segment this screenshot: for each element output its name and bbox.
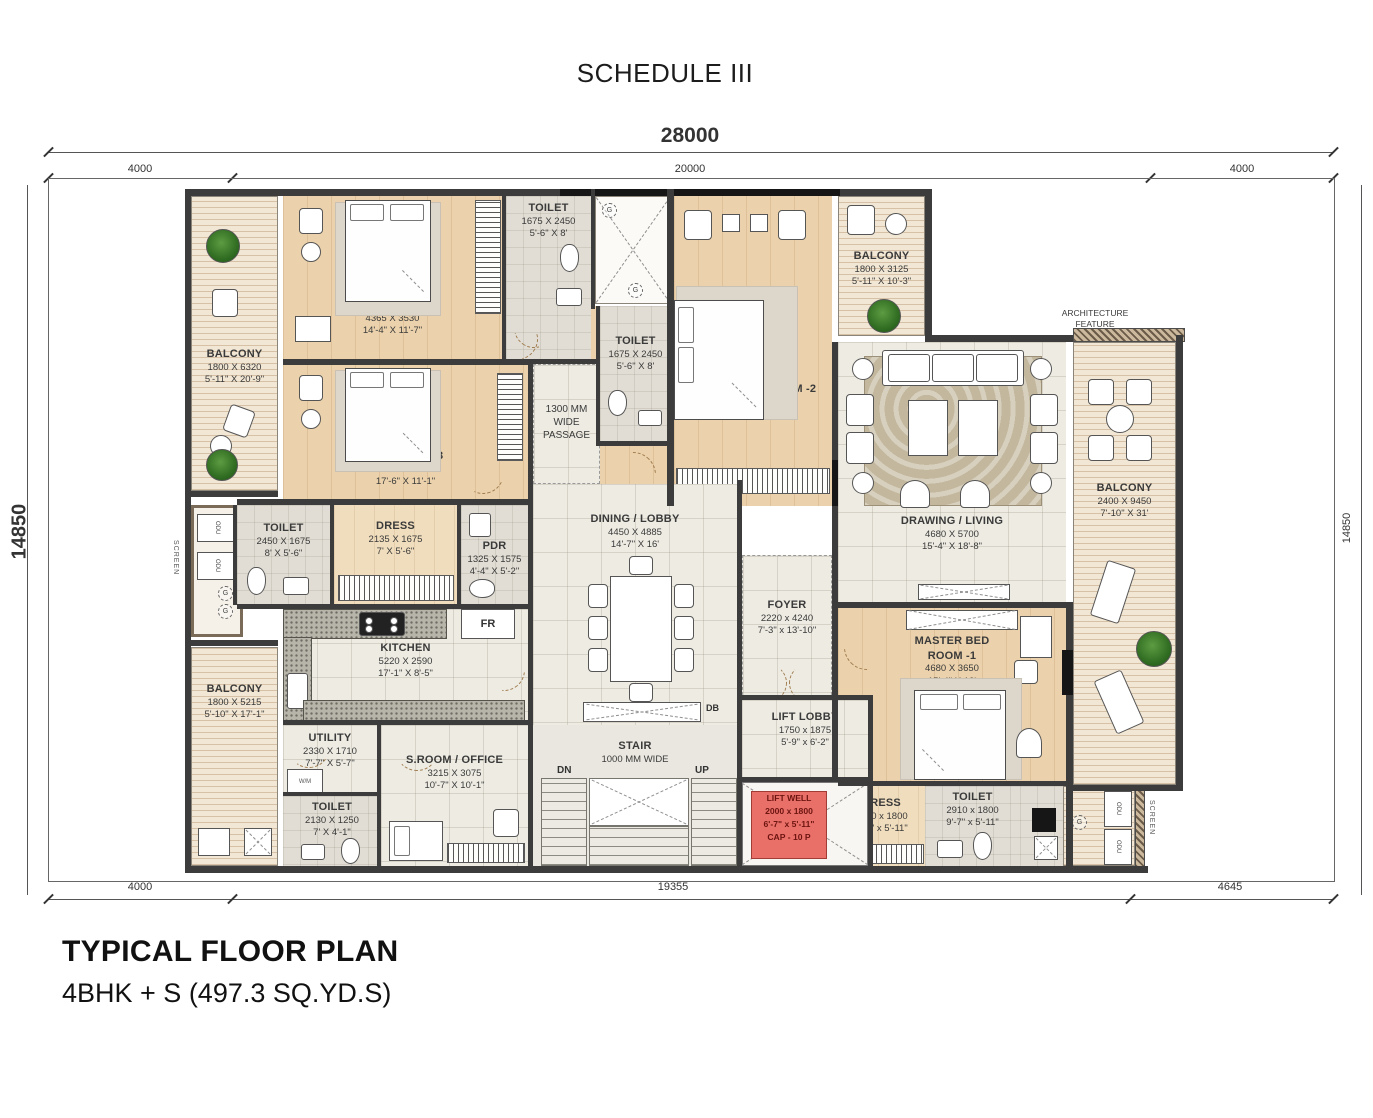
room-dim: 7'-10" X 31' <box>1074 508 1175 521</box>
room-toilet-bottom-right: TOILET 2910 x 1800 9'-7" x 5'-11" <box>925 786 1020 866</box>
dim-line <box>48 899 1333 900</box>
shaft-icon <box>244 828 272 856</box>
room-dim: 3215 X 3075 <box>381 768 528 781</box>
single-bed-icon <box>389 821 443 861</box>
door-arc <box>395 727 439 771</box>
dim-top-overall: 28000 <box>620 124 760 148</box>
room-dim: 1800 X 3125 <box>839 264 924 277</box>
wall <box>591 189 595 309</box>
sofa-cushion <box>932 354 974 382</box>
stair-run <box>541 778 587 866</box>
chair-icon <box>847 205 875 235</box>
odu-unit-icon: ODU <box>197 514 237 542</box>
geyser-icon: G <box>218 586 233 601</box>
washbasin-icon <box>638 410 662 426</box>
chair-icon <box>1126 435 1152 461</box>
room-dim: 1675 X 2450 <box>600 349 671 362</box>
wall <box>233 505 237 605</box>
stool-icon <box>1030 358 1052 380</box>
lounge-chair-icon <box>1094 669 1145 734</box>
kitchen-counter <box>303 700 525 722</box>
toilet-icon <box>469 579 495 598</box>
wall <box>1073 785 1183 791</box>
desk-icon <box>1020 616 1052 658</box>
room-balcony-top-left: BALCONY 1800 X 6320 5'-11" X 20'-9" <box>191 196 278 491</box>
plant-icon <box>1136 631 1172 667</box>
wall <box>283 720 530 725</box>
chair-icon <box>493 809 519 837</box>
room-dim: 15'-4" X 18'-8" <box>838 541 1066 554</box>
room-dim: 9'-7" x 5'-11" <box>925 817 1020 830</box>
wall <box>560 189 840 196</box>
room-pdr: PDR 1325 X 1575 4'-4" X 5'-2" <box>461 505 528 604</box>
chair-icon <box>629 556 653 575</box>
chair-icon <box>674 616 694 640</box>
room-dim: 5'-10" X 17'-1" <box>192 709 277 722</box>
room-dim: 1325 X 1575 <box>461 554 528 567</box>
room-dim: 4'-4" X 5'-2" <box>461 566 528 579</box>
room-shaft-filler <box>1020 786 1063 866</box>
bed-icon <box>345 200 431 302</box>
room-dim: 5'-11" X 20'-9" <box>192 374 277 387</box>
room-dim: 5'-6" X 8' <box>506 228 591 241</box>
dim-top-left: 4000 <box>90 163 190 175</box>
dim-side-left: 14850 <box>9 482 32 582</box>
room-dim: 1800 X 6320 <box>192 362 277 375</box>
desk-icon <box>295 316 331 342</box>
room-label: TOILET <box>506 201 591 216</box>
wall <box>457 505 461 605</box>
up-label: UP <box>695 765 709 776</box>
room-dim: 8' X 5'-6" <box>237 548 330 561</box>
db-label: DB <box>706 703 719 713</box>
room-dim: 2400 X 9450 <box>1074 496 1175 509</box>
dim-line <box>1361 185 1362 895</box>
wall <box>185 491 278 497</box>
room-kitchen: KITCHEN 5220 X 2590 17'-1" X 8'-5" FR <box>283 609 528 720</box>
room-label: BALCONY <box>192 682 277 697</box>
chair-icon <box>1088 379 1114 405</box>
wall <box>283 359 530 365</box>
table-icon <box>750 214 768 232</box>
footer-title: TYPICAL FLOOR PLAN <box>62 935 399 969</box>
architecture-feature-bar <box>1073 328 1185 342</box>
chair-icon <box>588 616 608 640</box>
room-label: BALCONY <box>839 249 924 264</box>
chair-icon <box>588 648 608 672</box>
armchair-icon <box>846 432 874 464</box>
sofa-cushion <box>888 354 930 382</box>
room-dim: 2910 x 1800 <box>925 805 1020 818</box>
room-dim: 5'-9" x 6'-2" <box>742 737 868 750</box>
wall <box>596 306 600 441</box>
chair-icon <box>629 683 653 702</box>
room-balcony-right: BALCONY 2400 X 9450 7'-10" X 31' <box>1073 342 1176 785</box>
room-balcony-bottom-right: G ODU ODU <box>1063 786 1135 866</box>
table-icon <box>885 213 907 235</box>
fridge-icon: FR <box>461 609 515 639</box>
wall <box>1062 650 1073 695</box>
dn-label: DN <box>557 765 571 776</box>
chair-icon <box>1126 379 1152 405</box>
room-dim: 14'-7" X 16' <box>533 539 737 552</box>
chair-icon <box>778 210 806 240</box>
room-label: BALCONY <box>192 347 277 362</box>
bed-icon <box>674 300 764 420</box>
room-lift-well: LIFT WELL 2000 x 1800 6'-7" x 5'-11" CAP… <box>742 782 868 866</box>
tv-console-icon <box>918 584 1010 600</box>
center-table-icon <box>958 400 998 456</box>
room-label: TOILET <box>925 790 1020 805</box>
wall <box>1066 602 1073 866</box>
wall <box>737 480 742 873</box>
room-label: PDR <box>461 539 528 554</box>
plant-icon <box>206 449 238 481</box>
stair-run <box>589 826 689 866</box>
wall <box>925 189 932 342</box>
armchair-icon <box>846 394 874 426</box>
washbasin-icon <box>283 577 309 595</box>
washbasin-icon <box>556 288 582 306</box>
room-label: STAIR <box>533 739 737 754</box>
wall <box>737 777 873 782</box>
washbasin-icon <box>469 513 491 537</box>
console-icon <box>583 702 701 722</box>
hob-icon <box>359 612 405 636</box>
room-lift-lobby: LIFT LOBBY 1750 x 1875 5'-9" x 6'-2" <box>742 700 868 777</box>
room-balcony-bottom-left: BALCONY 1800 X 5215 5'-10" X 17'-1" <box>191 647 278 866</box>
room-dim: 10'-7" X 10'-1" <box>381 780 528 793</box>
wall <box>1176 335 1183 790</box>
chair-icon <box>588 584 608 608</box>
lift-well-label: LIFT WELL 2000 x 1800 6'-7" x 5'-11" CAP… <box>752 792 826 844</box>
room-master-bedroom-2: MASTER BED ROOM -2 3595 X 6365 11'-10" X… <box>674 196 832 506</box>
wall <box>283 792 381 796</box>
wall <box>237 499 530 505</box>
room-passage: 1300 MM WIDE PASSAGE <box>533 364 600 484</box>
wall <box>528 359 533 873</box>
wall <box>185 866 1075 873</box>
toilet-icon <box>608 390 627 416</box>
room-label: FOYER <box>743 598 831 613</box>
room-dim: 7' X 4'-1" <box>283 827 381 840</box>
armchair-icon <box>1016 728 1042 758</box>
dim-bottom-center: 19355 <box>618 881 728 893</box>
geyser-icon: G <box>1072 815 1087 830</box>
center-table-icon <box>908 400 948 456</box>
room-dining-lobby: DINING / LOBBY 4450 X 4885 14'-7" X 16' <box>533 484 737 725</box>
wall <box>737 695 873 700</box>
footer-subtitle: 4BHK + S (497.3 SQ.YD.S) <box>62 978 391 1009</box>
armchair-icon <box>1030 432 1058 464</box>
armchair-icon <box>960 480 990 508</box>
wall <box>1032 808 1056 832</box>
sofa-cushion <box>976 354 1018 382</box>
room-dim: 4450 X 4885 <box>533 527 737 540</box>
wall <box>185 189 191 873</box>
chair-icon <box>222 403 256 438</box>
table-icon <box>301 409 321 429</box>
screen-label: SCREEN <box>172 540 179 575</box>
room-balcony-top-right: BALCONY 1800 X 3125 5'-11" X 10'-3" <box>838 196 925 336</box>
chair-icon <box>1088 435 1114 461</box>
room-label: LIFT LOBBY <box>742 710 868 725</box>
wall <box>1060 866 1148 873</box>
dining-table-icon <box>610 576 672 682</box>
room-toilet-mid-left: TOILET 2450 X 1675 8' X 5'-6" <box>237 505 330 604</box>
room-label: BALCONY <box>1074 481 1175 496</box>
room-dim: 2130 X 1250 <box>283 815 381 828</box>
room-toilet-top-2: TOILET 1675 X 2450 5'-6" X 8' <box>600 306 671 441</box>
room-dim: 1675 X 2450 <box>506 216 591 229</box>
stool-icon <box>1030 472 1052 494</box>
room-label: DRESS <box>334 519 457 534</box>
shaft-icon <box>1034 836 1058 860</box>
wall <box>330 505 334 605</box>
plant-icon <box>867 299 901 333</box>
washbasin-icon <box>301 844 325 860</box>
washbasin-icon <box>937 840 963 858</box>
stool-icon <box>852 358 874 380</box>
table-icon <box>722 214 740 232</box>
room-label: 1300 MM <box>534 403 599 416</box>
stair-landing <box>589 778 689 826</box>
dim-side-right: 14850 <box>1341 483 1353 573</box>
room-dim: 2220 x 4240 <box>743 613 831 626</box>
room-foyer: FOYER 2220 x 4240 7'-3" x 13'-10" <box>742 555 832 700</box>
room-label: DRAWING / LIVING <box>838 514 1066 529</box>
room-sroom-office: S.ROOM / OFFICE 3215 X 3075 10'-7" X 10'… <box>381 725 528 866</box>
wall <box>832 342 838 782</box>
bed-icon <box>914 690 1006 780</box>
armchair-icon <box>1030 394 1058 426</box>
room-dim: 7'-3" x 13'-10" <box>743 625 831 638</box>
room-toilet-bottom-left: TOILET 2130 X 1250 7' X 4'-1" <box>283 796 381 866</box>
odu-unit-icon: ODU <box>1104 829 1132 865</box>
room-dim: 1800 X 5215 <box>192 697 277 710</box>
chair-icon <box>212 289 238 317</box>
room-dim: 5'-6" X 8' <box>600 361 671 374</box>
toilet-icon <box>973 832 992 860</box>
room-dim: 1750 x 1875 <box>742 725 868 738</box>
stair-run <box>691 778 737 866</box>
wall <box>596 441 671 446</box>
room-label: WIDE <box>534 416 599 429</box>
chair-icon <box>684 210 712 240</box>
room-dim: 7' X 5'-6" <box>334 546 457 559</box>
washbasin-icon <box>198 828 230 856</box>
chair-icon <box>674 584 694 608</box>
table-icon <box>1106 405 1134 433</box>
plant-icon <box>206 229 240 263</box>
room-label: PASSAGE <box>534 429 599 442</box>
wall <box>667 189 674 506</box>
chair-icon <box>299 375 323 401</box>
chair-icon <box>674 648 694 672</box>
lift-well-box: LIFT WELL 2000 x 1800 6'-7" x 5'-11" CAP… <box>751 791 827 859</box>
wall <box>838 602 1073 608</box>
armchair-icon <box>900 480 930 508</box>
wall <box>832 460 838 506</box>
toilet-icon <box>560 244 579 272</box>
dim-top-right: 4000 <box>1192 163 1292 175</box>
room-label: TOILET <box>600 334 671 349</box>
screen-strip <box>1135 786 1145 868</box>
room-bedroom-4: BED ROOM -4 4365 X 3530 14'-4" X 11'-7" <box>283 196 502 359</box>
stool-icon <box>852 472 874 494</box>
wardrobe-icon <box>497 373 523 461</box>
wardrobe-icon <box>338 575 454 601</box>
closet-icon <box>906 610 1018 630</box>
floor-plan-sheet: SCHEDULE III TYPICAL FLOOR PLAN 4BHK + S… <box>0 0 1373 1118</box>
room-label: DINING / LOBBY <box>533 512 737 527</box>
geyser-icon: G <box>218 604 233 619</box>
bed-icon <box>345 368 431 462</box>
room-drawing-living: DRAWING / LIVING 4680 X 5700 15'-4" X 18… <box>838 342 1066 602</box>
room-dim: 2450 X 1675 <box>237 536 330 549</box>
room-dim: 4680 X 5700 <box>838 529 1066 542</box>
wardrobe-icon <box>475 200 501 314</box>
geyser-icon: G <box>602 203 617 218</box>
room-dim: 5'-11" X 10'-3" <box>839 276 924 289</box>
screen-label: SCREEN <box>1148 800 1155 835</box>
page-title: SCHEDULE III <box>480 58 850 89</box>
wall <box>237 604 530 609</box>
wall <box>838 781 1073 786</box>
toilet-icon <box>247 567 266 595</box>
room-shower: G G <box>595 196 671 304</box>
geyser-icon: G <box>628 283 643 298</box>
wall <box>930 335 1073 342</box>
table-icon <box>301 242 321 262</box>
dim-line <box>48 152 1333 153</box>
odu-unit-icon: ODU <box>1104 791 1132 827</box>
odu-unit-icon: ODU <box>197 552 237 580</box>
toilet-icon <box>341 838 360 864</box>
room-label: TOILET <box>283 800 381 815</box>
room-stair: STAIR 1000 MM WIDE DN UP <box>533 725 737 866</box>
wardrobe-icon <box>447 843 525 863</box>
room-label: TOILET <box>237 521 330 536</box>
dim-bottom-left: 4000 <box>90 881 190 893</box>
wall <box>185 640 278 646</box>
dim-bottom-right: 4645 <box>1180 881 1280 893</box>
room-dim: 2135 X 1675 <box>334 534 457 547</box>
dim-line <box>27 185 28 895</box>
dim-top-center: 20000 <box>640 163 740 175</box>
room-dress-mid: DRESS 2135 X 1675 7' X 5'-6" <box>334 505 457 604</box>
lounge-chair-icon <box>1090 560 1136 624</box>
chair-icon <box>299 208 323 234</box>
wall <box>868 695 873 873</box>
